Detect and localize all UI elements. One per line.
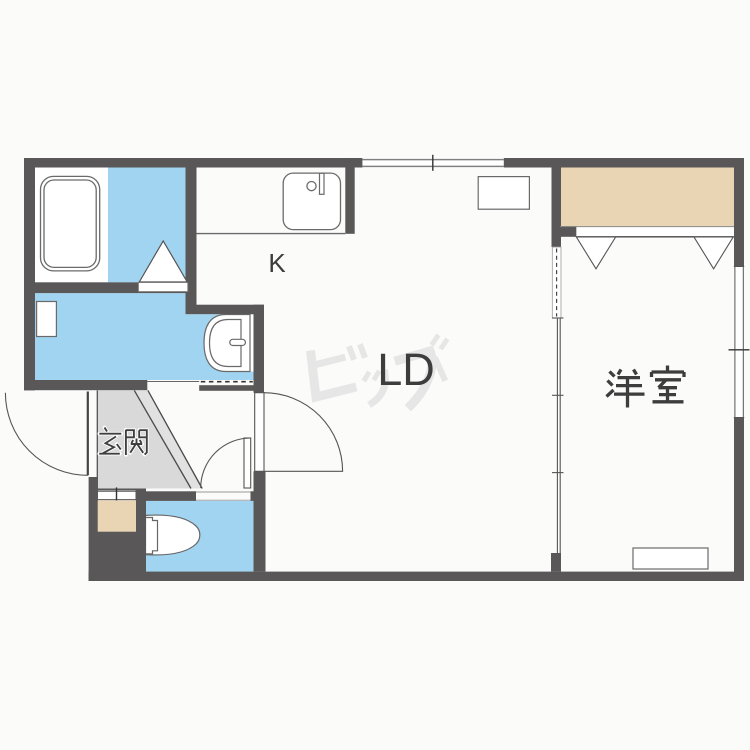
svg-text:LD: LD: [377, 344, 435, 395]
svg-text:K: K: [268, 248, 286, 278]
